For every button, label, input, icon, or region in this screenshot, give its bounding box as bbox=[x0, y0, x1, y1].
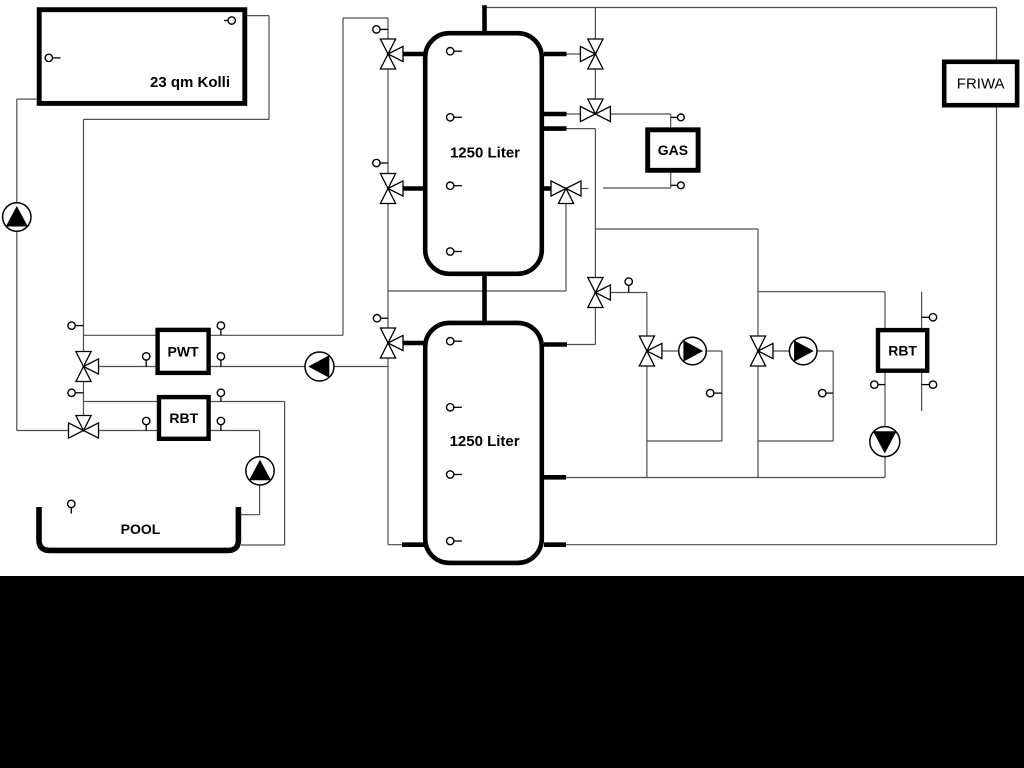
svg-text:RBT: RBT bbox=[169, 410, 198, 426]
svg-text:GAS: GAS bbox=[658, 142, 688, 158]
svg-text:FRIWA: FRIWA bbox=[957, 76, 1005, 93]
svg-text:1250 Liter: 1250 Liter bbox=[450, 433, 520, 450]
svg-text:POOL: POOL bbox=[121, 521, 161, 537]
svg-text:1250 Liter: 1250 Liter bbox=[450, 145, 520, 162]
svg-text:RBT: RBT bbox=[888, 342, 917, 358]
svg-text:PWT: PWT bbox=[168, 343, 200, 359]
svg-text:23 qm Kolli: 23 qm Kolli bbox=[150, 74, 230, 91]
